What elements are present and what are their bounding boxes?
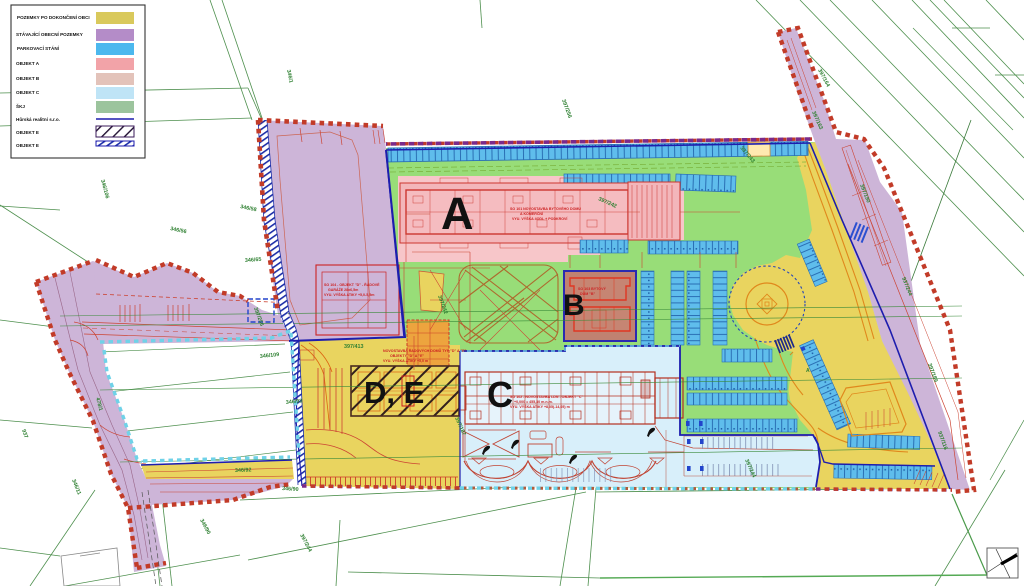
svg-text:NOVOSTAVBA ŘADOVÝCH DOMŮ TYP ": NOVOSTAVBA ŘADOVÝCH DOMŮ TYP "D" A "E": [383, 348, 467, 353]
svg-text:A KOMERČNÍ: A KOMERČNÍ: [520, 211, 544, 216]
svg-text:STÁVAJÍCÍ OBECNÍ POZEMKY: STÁVAJÍCÍ OBECNÍ POZEMKY: [16, 30, 83, 37]
svg-text:937: 937: [20, 429, 29, 440]
svg-text:346/92: 346/92: [235, 467, 252, 474]
svg-text:OBJEKT A: OBJEKT A: [16, 61, 40, 66]
svg-text:POZEMKY PO DOKONČENÍ OBCI: POZEMKY PO DOKONČENÍ OBCI: [17, 13, 90, 20]
svg-text:346/56: 346/56: [170, 226, 187, 235]
svg-text:VYU. VÝŠKA ATIKY +5,0 m: VYU. VÝŠKA ATIKY +5,0 m: [383, 358, 428, 363]
svg-text:346/58: 346/58: [240, 204, 257, 213]
svg-text:SO 103 BYTOVÝ: SO 103 BYTOVÝ: [578, 286, 607, 291]
svg-text:GARÁŽE 28x6,5m: GARÁŽE 28x6,5m: [328, 287, 358, 292]
svg-text:397/244: 397/244: [298, 533, 312, 553]
svg-text:SO 101 NOVOSTAVBA BYTOVÉHO DOM: SO 101 NOVOSTAVBA BYTOVÉHO DOMU: [510, 206, 581, 211]
svg-text:346/1: 346/1: [285, 69, 294, 83]
svg-text:346/90: 346/90: [198, 518, 211, 535]
svg-text:D, E: D, E: [364, 375, 424, 410]
svg-text:VYU. VÝŠKA 4ODL + PODKROVÍ: VYU. VÝŠKA 4ODL + PODKROVÍ: [512, 216, 568, 221]
svg-text:397/413: 397/413: [344, 344, 364, 350]
svg-text:OBJEKTY "D" A "E": OBJEKTY "D" A "E": [390, 354, 424, 358]
svg-text:Hůrská realitní s.r.o.: Hůrská realitní s.r.o.: [16, 116, 60, 122]
svg-text:+0,000 = 455,30 m.n.m.: +0,000 = 455,30 m.n.m.: [514, 400, 553, 404]
svg-text:OBJEKT C: OBJEKT C: [16, 90, 40, 95]
svg-text:OBJEKT B: OBJEKT B: [16, 76, 40, 81]
svg-text:PARKOVACÍ STÁNÍ: PARKOVACÍ STÁNÍ: [17, 44, 60, 51]
svg-text:DŮM "B": DŮM "B": [580, 291, 595, 296]
svg-text:346/11: 346/11: [70, 479, 82, 496]
svg-text:346/109: 346/109: [260, 352, 280, 360]
svg-text:VYU. VÝŠKA ATIKY +5,0-5,5m: VYU. VÝŠKA ATIKY +5,0-5,5m: [324, 292, 374, 297]
svg-text:A: A: [441, 188, 474, 239]
svg-text:SO 104 - OBJEKT "D" - ŘADOVÉ: SO 104 - OBJEKT "D" - ŘADOVÉ: [324, 282, 380, 287]
svg-text:OBJEKT E: OBJEKT E: [16, 130, 39, 135]
svg-text:397/256: 397/256: [560, 99, 572, 119]
svg-text:346/65: 346/65: [245, 257, 262, 264]
svg-text:346/106: 346/106: [99, 179, 110, 199]
svg-text:A: A: [806, 368, 810, 374]
svg-text:ŠKJ: ŠKJ: [16, 102, 25, 109]
svg-text:346/90: 346/90: [282, 486, 299, 493]
svg-text:SO 102 - NOVOSTAVBA LDN - OBJE: SO 102 - NOVOSTAVBA LDN - OBJEKT "C": [510, 395, 584, 399]
svg-text:VYU. VÝŠKA ATIKY +8,05(-14,05): VYU. VÝŠKA ATIKY +8,05(-14,05) m: [510, 404, 570, 409]
svg-text:OBJEKT E: OBJEKT E: [16, 143, 39, 148]
